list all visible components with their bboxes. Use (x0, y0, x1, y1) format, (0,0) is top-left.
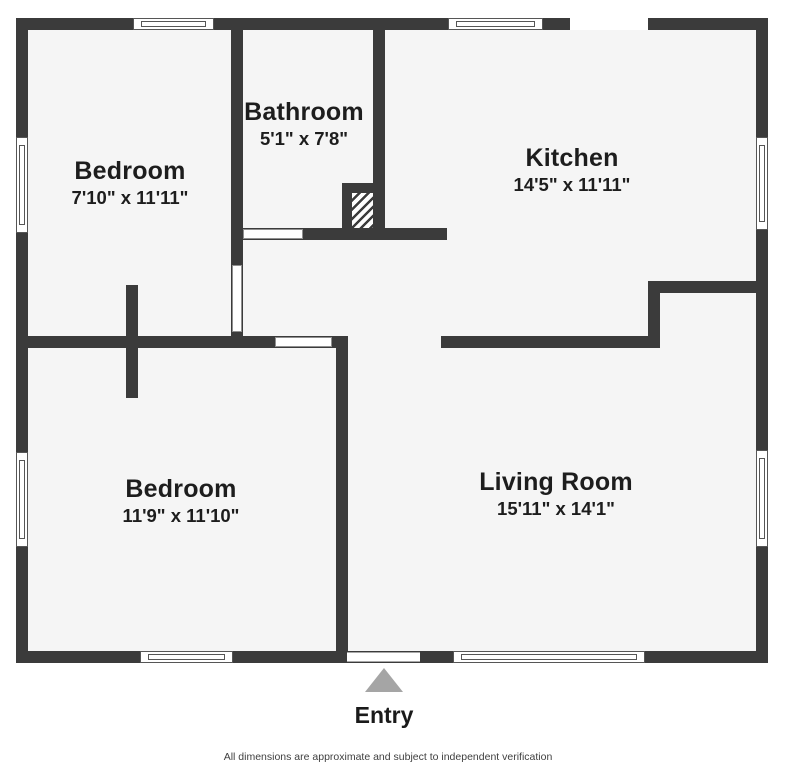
window-right-kitchen (756, 137, 768, 230)
room-label-bedroom-1: Bedroom 7'10" x 11'11" (72, 156, 189, 209)
wall-bedroom2-living-divider (336, 336, 348, 663)
wall-exterior-top (16, 18, 768, 30)
door-bedroom1 (232, 265, 242, 332)
wall-exterior-right (756, 18, 768, 663)
room-dimensions: 14'5" x 11'11" (514, 173, 631, 196)
room-dimensions: 5'1" x 7'8" (244, 127, 364, 150)
floor-plan: Bedroom 7'10" x 11'11" Bathroom 5'1" x 7… (0, 0, 785, 768)
window-top-kitchen (448, 18, 543, 30)
room-label-living-room: Living Room 15'11" x 14'1" (479, 467, 633, 520)
chimney-hatch (352, 193, 373, 228)
room-name: Bedroom (72, 156, 189, 186)
entry-triangle-icon (365, 668, 403, 692)
wall-bathroom-kitchen-divider (373, 30, 385, 240)
wall-living-room-top (441, 336, 660, 348)
window-bottom-living (453, 651, 645, 663)
room-label-kitchen: Kitchen 14'5" x 11'11" (514, 143, 631, 196)
room-name: Bedroom (123, 474, 240, 504)
room-dimensions: 11'9" x 11'10" (123, 504, 240, 527)
door-bathroom (243, 229, 303, 239)
wall-chimney-left (342, 183, 352, 240)
entry-label: Entry (355, 702, 414, 729)
disclaimer-text: All dimensions are approximate and subje… (224, 751, 553, 763)
wall-kitchen-step-horizontal (648, 281, 768, 293)
window-left-bedroom2 (16, 452, 28, 547)
opening-entry-door (347, 652, 420, 662)
room-label-bedroom-2: Bedroom 11'9" x 11'10" (123, 474, 240, 527)
room-name: Bathroom (244, 97, 364, 127)
door-bedroom2 (275, 337, 332, 347)
room-name: Kitchen (514, 143, 631, 173)
wall-closet-stub (126, 285, 138, 398)
room-label-bathroom: Bathroom 5'1" x 7'8" (244, 97, 364, 150)
window-right-living (756, 450, 768, 547)
opening-kitchen-rear-door (570, 18, 648, 30)
window-left-bedroom1 (16, 137, 28, 233)
room-dimensions: 15'11" x 14'1" (479, 497, 633, 520)
window-bottom-bedroom2 (140, 651, 233, 663)
room-dimensions: 7'10" x 11'11" (72, 186, 189, 209)
window-top-bedroom1 (133, 18, 214, 30)
room-name: Living Room (479, 467, 633, 497)
